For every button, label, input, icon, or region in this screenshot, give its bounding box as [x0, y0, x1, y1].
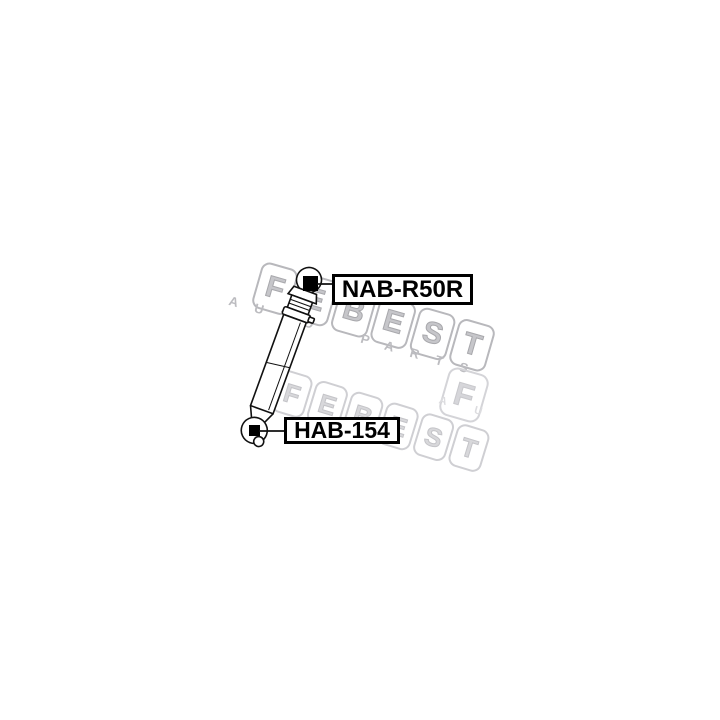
- upper-bushing-marker: [303, 276, 318, 291]
- part-number-lower: HAB-154: [294, 419, 390, 442]
- callout-box-lower-bushing: HAB-154: [284, 417, 400, 444]
- lower-bushing-marker: [249, 425, 260, 436]
- part-number-upper: NAB-R50R: [342, 278, 463, 302]
- callout-box-upper-bushing: NAB-R50R: [332, 274, 473, 305]
- clamp-tab: [308, 317, 315, 324]
- catalog-image: { "image": { "background": "#ffffff", "l…: [0, 0, 720, 720]
- shock-absorber-drawing: [0, 0, 720, 720]
